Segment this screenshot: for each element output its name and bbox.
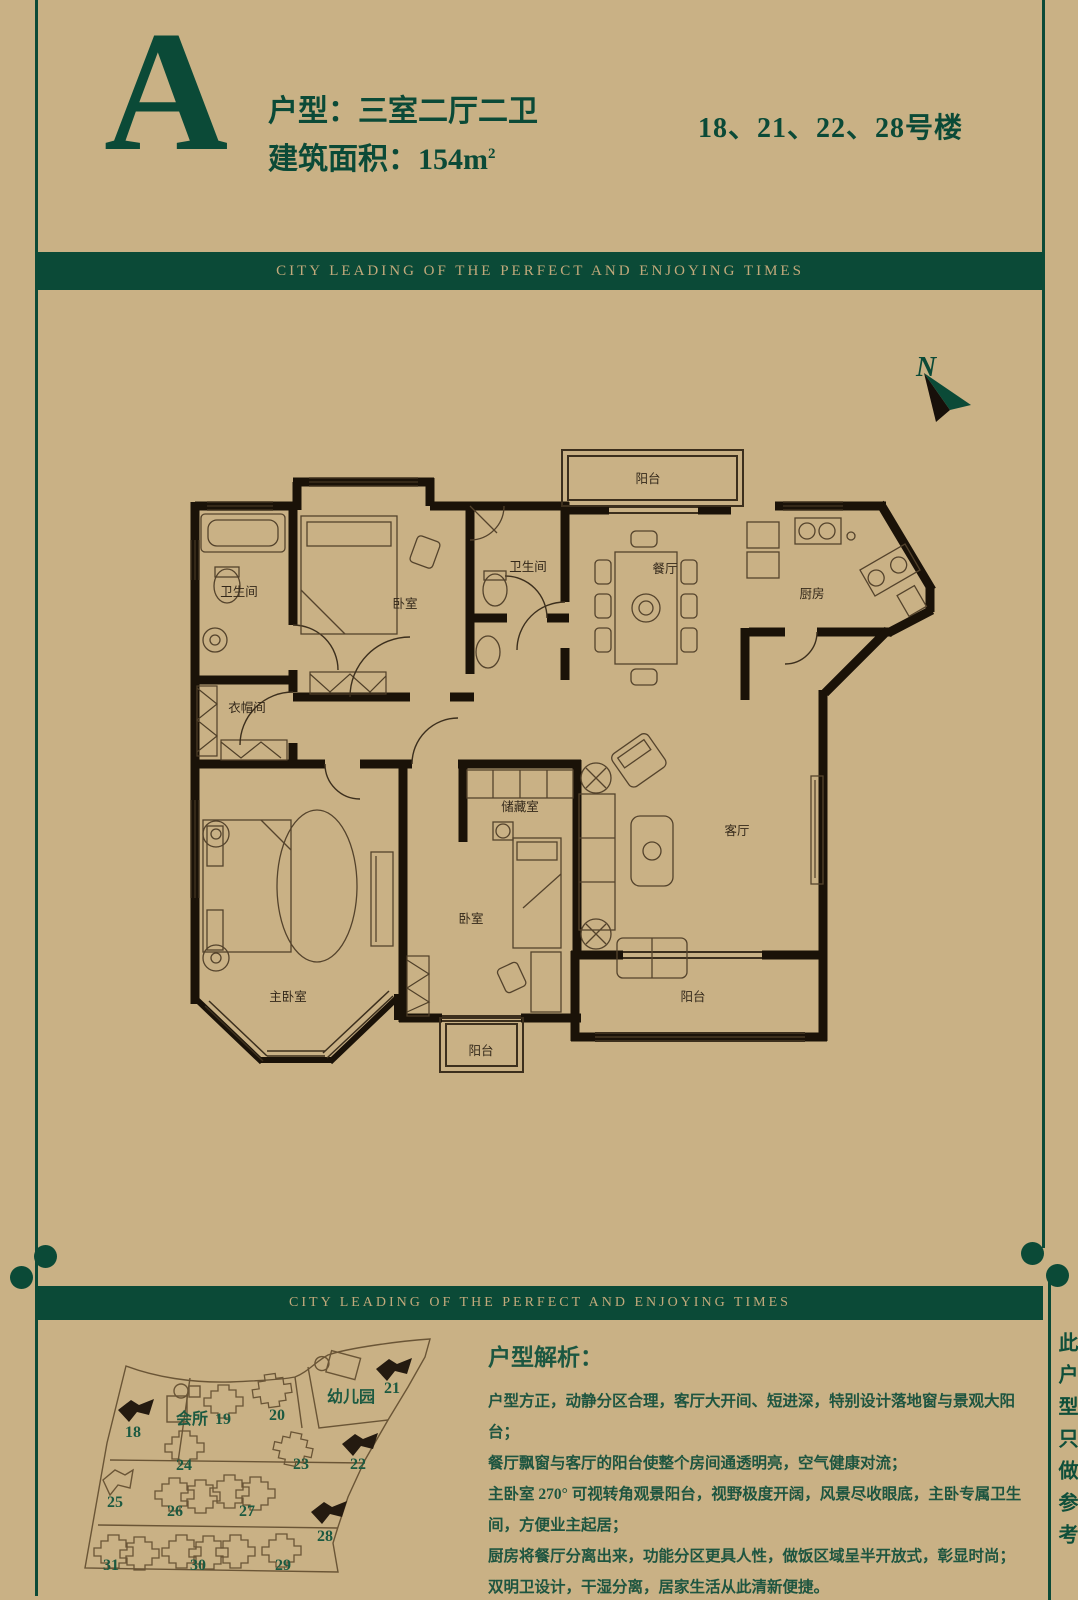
label-storage: 储藏室 bbox=[501, 799, 539, 814]
frame-line-left bbox=[35, 0, 38, 1596]
site-buildings-outline bbox=[94, 1372, 316, 1570]
corner-dot bbox=[10, 1266, 33, 1289]
site-label-19: 19 bbox=[215, 1411, 231, 1428]
unit-analysis: 户型解析： 户型方正，动静分区合理，客厅大开间、短进深，特别设计落地窗与景观大阳… bbox=[488, 1338, 1040, 1600]
analysis-heading: 户型解析： bbox=[488, 1338, 1040, 1372]
label-dining: 餐厅 bbox=[652, 561, 677, 576]
site-label-26: 26 bbox=[167, 1503, 183, 1520]
label-bathroom-1: 卫生间 bbox=[220, 585, 258, 599]
unit-type-title: 户型：三室二厅二卫 bbox=[268, 86, 538, 130]
label-bedroom-2: 卧室 bbox=[458, 911, 483, 926]
building-numbers-title: 18、21、22、28号楼 bbox=[698, 106, 963, 146]
label-bedroom-top: 卧室 bbox=[392, 596, 417, 611]
label-living: 客厅 bbox=[724, 823, 749, 838]
analysis-line: 双明卫设计，干湿分离，居家生活从此清新便捷。 bbox=[488, 1572, 1040, 1600]
analysis-line: 户型方正，动静分区合理，客厅大开间、短进深，特别设计落地窗与景观大阳台； bbox=[488, 1386, 1040, 1448]
frame-line-right-top bbox=[1042, 0, 1045, 1248]
site-label-27: 27 bbox=[239, 1503, 255, 1520]
site-label-18: 18 bbox=[125, 1424, 141, 1441]
site-label-20: 20 bbox=[269, 1407, 285, 1424]
north-compass: N bbox=[850, 330, 990, 450]
banner-slogan: CITY LEADING OF THE PERFECT AND ENJOYING… bbox=[276, 263, 804, 280]
poster-page: A 户型：三室二厅二卫 建筑面积：154m2 18、21、22、28号楼 CIT… bbox=[0, 0, 1078, 1600]
wardrobe-hatching bbox=[197, 672, 429, 1016]
bay-window-walls bbox=[195, 994, 399, 1062]
label-kitchen: 厨房 bbox=[799, 586, 824, 601]
side-note: 此户型只做参考 bbox=[1052, 1332, 1078, 1556]
corner-dot bbox=[34, 1245, 57, 1268]
site-label-31: 31 bbox=[103, 1557, 119, 1574]
corner-dot bbox=[1046, 1264, 1069, 1287]
site-label-clubhouse: 会所 bbox=[176, 1409, 208, 1428]
label-balcony-right: 阳台 bbox=[680, 989, 705, 1004]
area-superscript: 2 bbox=[488, 146, 496, 162]
site-label-22: 22 bbox=[350, 1456, 366, 1473]
label-cloakroom: 衣帽间 bbox=[228, 700, 266, 715]
plan-walls bbox=[195, 478, 932, 1041]
frame-line-right-bottom bbox=[1048, 1272, 1051, 1600]
site-label-23: 23 bbox=[293, 1456, 309, 1473]
unit-letter: A bbox=[104, 6, 228, 178]
floor-plan: 卫生间 衣帽间 卧室 卫生间 阳台 餐厅 厨房 主卧室 卧室 储藏室 客厅 阳台… bbox=[175, 440, 940, 1085]
unit-area-title: 建筑面积：154m2 bbox=[268, 134, 496, 178]
analysis-line: 厨房将餐厅分离出来，功能分区更具人性，做饭区域呈半开放式，彰显时尚； bbox=[488, 1541, 1040, 1572]
corner-dot bbox=[1021, 1242, 1044, 1265]
analysis-line: 餐厅飘窗与客厅的阳台使整个房间通透明亮，空气健康对流； bbox=[488, 1448, 1040, 1479]
label-balcony-top: 阳台 bbox=[635, 471, 660, 486]
site-label-24: 24 bbox=[176, 1457, 192, 1474]
site-label-30: 30 bbox=[190, 1557, 206, 1574]
site-label-25: 25 bbox=[107, 1494, 123, 1511]
site-label-29: 29 bbox=[275, 1557, 291, 1574]
analysis-line: 主卧室 270° 可视转角观景阳台，视野极度开阔，风景尽收眼底，主卧专属卫生间，… bbox=[488, 1479, 1040, 1541]
label-master-bedroom: 主卧室 bbox=[269, 989, 307, 1004]
label-bathroom-2: 卫生间 bbox=[509, 560, 547, 574]
site-label-28: 28 bbox=[317, 1528, 333, 1545]
area-text: 建筑面积：154m bbox=[268, 143, 488, 176]
site-label-kindergarten: 幼儿园 bbox=[327, 1387, 375, 1406]
site-label-21: 21 bbox=[384, 1380, 400, 1397]
site-map: 18 会所 19 20 幼儿园 21 24 23 22 25 26 27 28 … bbox=[70, 1300, 460, 1590]
top-banner: CITY LEADING OF THE PERFECT AND ENJOYING… bbox=[37, 252, 1043, 290]
label-balcony-small: 阳台 bbox=[468, 1043, 493, 1058]
